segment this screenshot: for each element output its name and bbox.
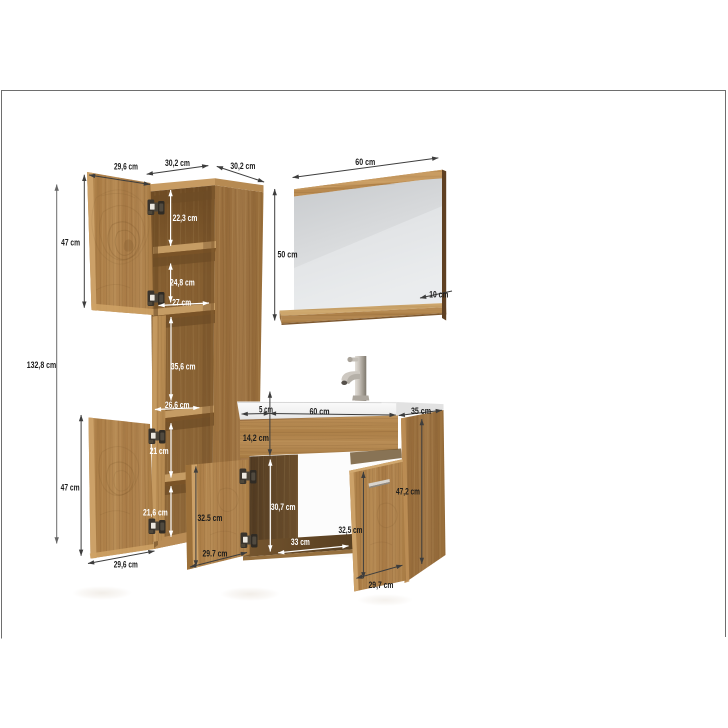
svg-text:29,7 cm: 29,7 cm xyxy=(369,580,394,591)
svg-text:60 cm: 60 cm xyxy=(355,157,375,168)
svg-text:22,3 cm: 22,3 cm xyxy=(173,213,198,224)
svg-text:50 cm: 50 cm xyxy=(278,250,298,261)
svg-text:35,6 cm: 35,6 cm xyxy=(171,362,196,373)
svg-text:21,6 cm: 21,6 cm xyxy=(143,508,168,519)
svg-text:27 cm: 27 cm xyxy=(172,298,191,309)
svg-text:30,2 cm: 30,2 cm xyxy=(165,158,190,169)
svg-text:30,2 cm: 30,2 cm xyxy=(230,161,255,172)
svg-text:47 cm: 47 cm xyxy=(61,483,80,494)
svg-text:26,6 cm: 26,6 cm xyxy=(165,400,190,411)
svg-text:60 cm: 60 cm xyxy=(310,407,330,418)
svg-text:29,6 cm: 29,6 cm xyxy=(114,560,138,571)
svg-text:47 cm: 47 cm xyxy=(61,238,80,249)
svg-text:29,6 cm: 29,6 cm xyxy=(114,162,138,173)
svg-text:33 cm: 33 cm xyxy=(291,537,310,548)
svg-text:30,7 cm: 30,7 cm xyxy=(271,502,296,513)
svg-text:24,8 cm: 24,8 cm xyxy=(170,278,195,289)
svg-text:32,5 cm: 32,5 cm xyxy=(339,525,363,536)
svg-text:29.7 cm: 29.7 cm xyxy=(203,549,228,560)
svg-text:5 cm: 5 cm xyxy=(259,405,273,416)
svg-text:132,8 cm: 132,8 cm xyxy=(27,360,57,371)
svg-text:47,2 cm: 47,2 cm xyxy=(396,487,420,498)
svg-text:21 cm: 21 cm xyxy=(150,446,169,457)
svg-text:32.5 cm: 32.5 cm xyxy=(198,513,223,524)
svg-text:10 cm: 10 cm xyxy=(429,290,448,301)
svg-text:14,2 cm: 14,2 cm xyxy=(243,433,269,444)
svg-text:35 cm: 35 cm xyxy=(411,406,431,417)
